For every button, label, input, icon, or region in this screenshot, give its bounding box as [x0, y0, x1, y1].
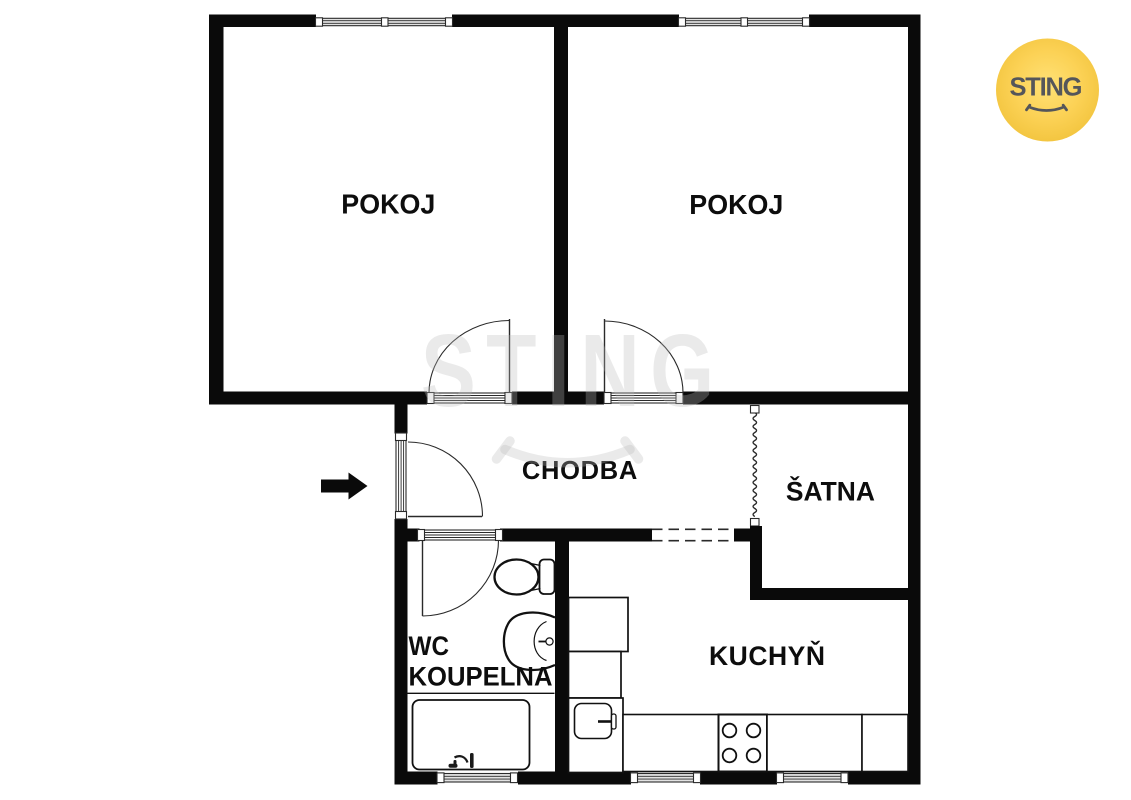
svg-text:POKOJ: POKOJ	[341, 189, 435, 220]
svg-text:STING: STING	[1010, 74, 1083, 102]
svg-text:KOUPELNA: KOUPELNA	[409, 662, 553, 692]
svg-text:ŠATNA: ŠATNA	[786, 476, 875, 507]
svg-text:POKOJ: POKOJ	[689, 189, 783, 220]
svg-text:KUCHYŇ: KUCHYŇ	[709, 641, 825, 671]
svg-text:WC: WC	[409, 631, 450, 661]
svg-text:STING: STING	[421, 313, 725, 428]
